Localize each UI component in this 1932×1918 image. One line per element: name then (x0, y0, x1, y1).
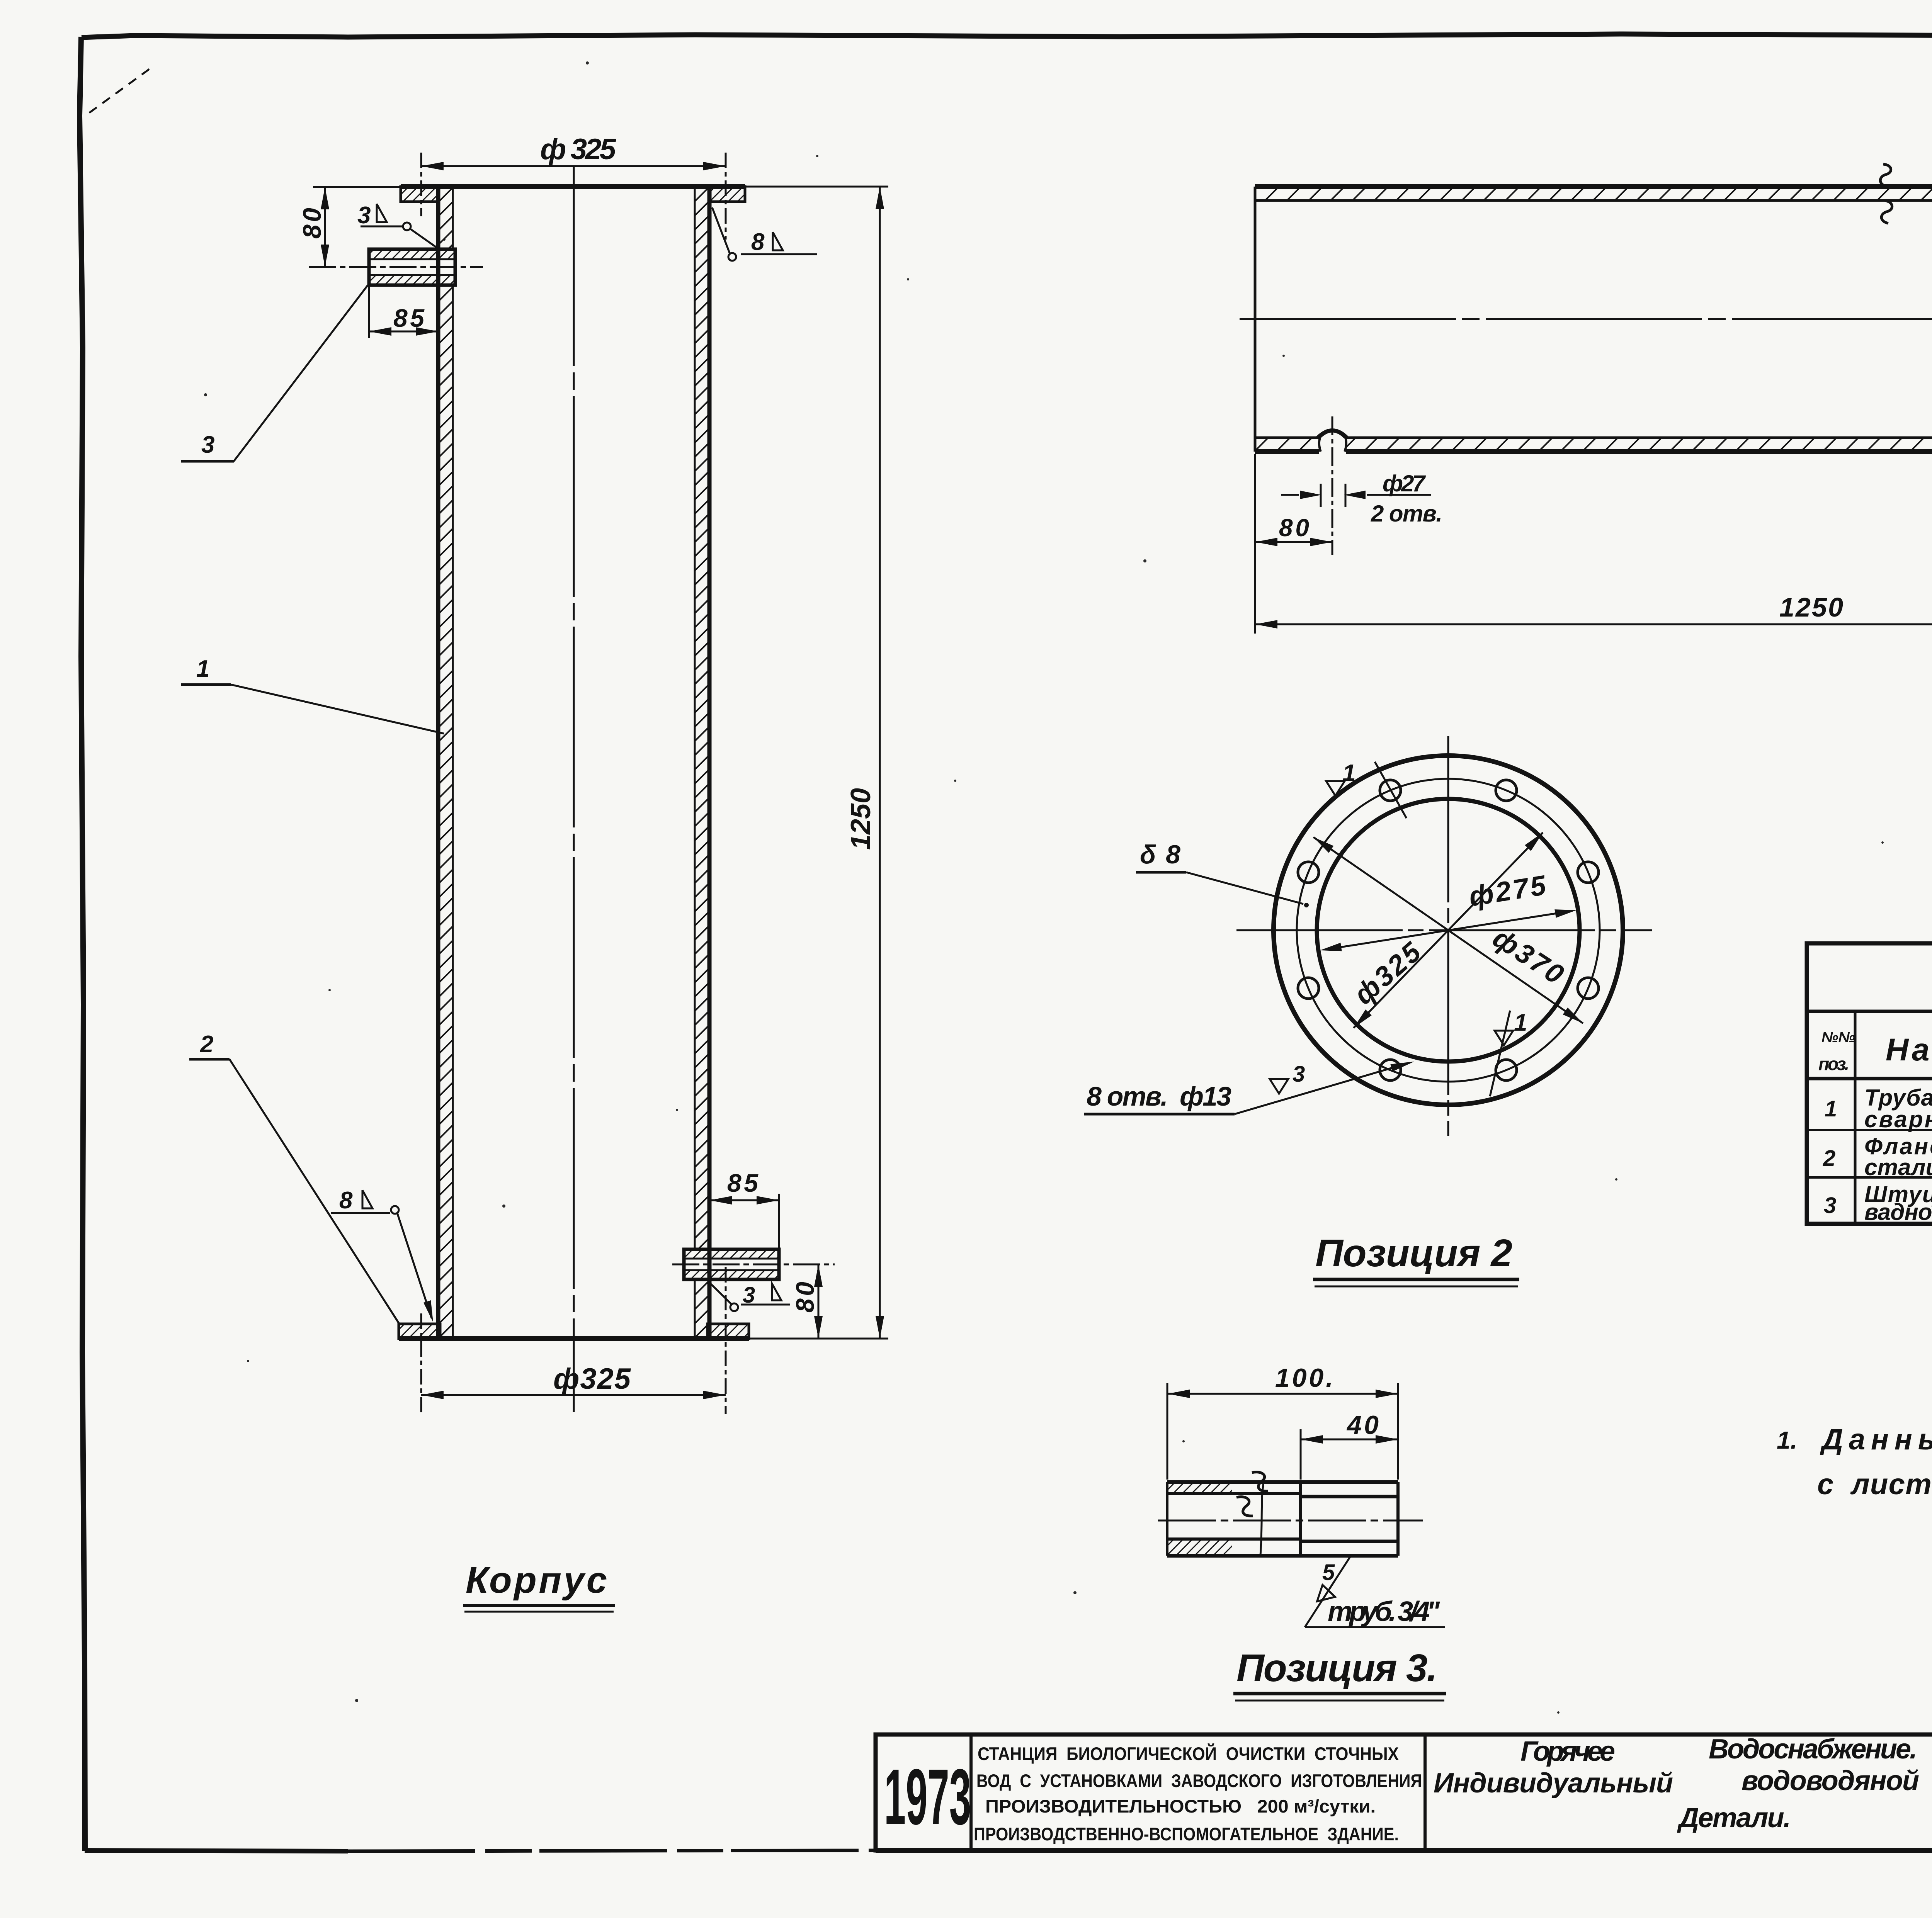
svg-text:Корпус: Корпус (466, 1560, 612, 1601)
svg-text:Наименование: Наименование (1886, 1032, 1932, 1067)
svg-text:2: 2 (200, 1031, 213, 1058)
svg-text:8: 8 (339, 1187, 353, 1214)
svg-text:стали δ= 8мм: стали δ= 8мм (1864, 1154, 1932, 1180)
svg-text:Позиция 2: Позиция 2 (1315, 1232, 1516, 1275)
svg-text:2: 2 (1823, 1146, 1835, 1171)
svg-text:5: 5 (1322, 1560, 1335, 1585)
svg-text:№№: №№ (1821, 1030, 1855, 1046)
svg-text:ПРОИЗВОДИТЕЛЬНОСТЬЮ 200 м³/с: ПРОИЗВОДИТЕЛЬНОСТЬЮ 200 м³/сутки. (985, 1796, 1376, 1816)
svg-text:1: 1 (1514, 1009, 1527, 1036)
svg-text:СТАНЦИЯ БИОЛОГИЧЕСКОЙ ОЧИСТК: СТАНЦИЯ БИОЛОГИЧЕСКОЙ ОЧИСТКИ СТОЧНЫХ (978, 1743, 1399, 1764)
svg-text:водоводяной: водоводяной (1742, 1765, 1919, 1796)
svg-text:Позиция 3.: Позиция 3. (1236, 1646, 1441, 1690)
svg-text:ф 325: ф 325 (540, 133, 617, 166)
svg-text:8: 8 (751, 229, 765, 255)
svg-text:ПРОИЗВОДСТВЕННО-ВСПОМОГАТЕЛЬНО: ПРОИЗВОДСТВЕННО-ВСПОМОГАТЕЛЬНОЕ ЗДАНИЕ. (974, 1824, 1399, 1844)
svg-text:3: 3 (1824, 1193, 1836, 1218)
svg-text:вадной трубы: вадной трубы (1864, 1199, 1932, 1225)
svg-text:8 отв. ф13: 8 отв. ф13 (1087, 1081, 1231, 1111)
svg-text:Горячее: Горячее (1520, 1736, 1615, 1767)
svg-text:ф325: ф325 (553, 1362, 631, 1395)
svg-text:1: 1 (1825, 1096, 1837, 1121)
svg-text:Индивидуальный: Индивидуальный (1434, 1768, 1673, 1799)
svg-text:3: 3 (357, 202, 371, 229)
svg-text:с листом: с листом (1817, 1468, 1932, 1501)
svg-text:ф27: ф27 (1383, 471, 1426, 496)
svg-text:Водоснабжение.: Водоснабжение. (1709, 1734, 1917, 1765)
svg-text:поз.: поз. (1818, 1054, 1849, 1074)
svg-text:1: 1 (196, 656, 209, 682)
svg-text:3: 3 (1293, 1062, 1305, 1087)
svg-text:труб. 3/4": труб. 3/4" (1328, 1596, 1440, 1627)
svg-text:Детали.: Детали. (1677, 1802, 1791, 1833)
svg-text:1: 1 (1342, 760, 1355, 787)
svg-text:1.: 1. (1777, 1426, 1797, 1454)
svg-text:сварная.: сварная. (1864, 1106, 1932, 1132)
svg-text:3: 3 (201, 432, 214, 458)
svg-text:1973: 1973 (884, 1753, 971, 1841)
svg-text:1250: 1250 (845, 788, 876, 850)
svg-text:ВОД С УСТАНОВКАМИ ЗАВОДСКОГ: ВОД С УСТАНОВКАМИ ЗАВОДСКОГО ИЗГОТОВЛЕНИ… (976, 1770, 1422, 1791)
svg-text:2 отв.: 2 отв. (1371, 501, 1442, 527)
